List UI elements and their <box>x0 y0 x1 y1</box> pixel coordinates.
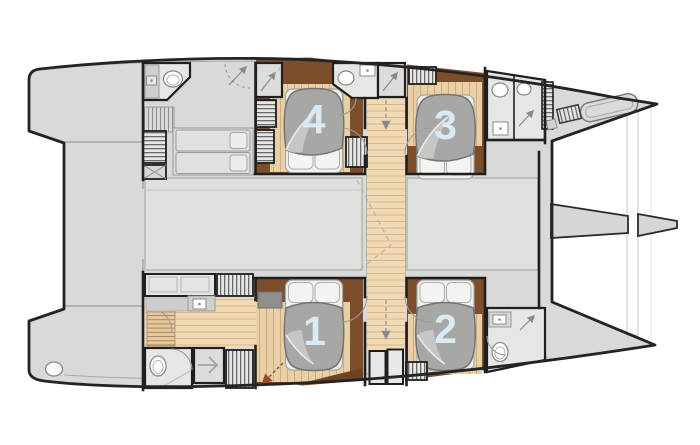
toilet-icon <box>492 83 508 97</box>
toilet-icon <box>338 71 354 85</box>
wardrobe-slats-icon <box>143 131 166 163</box>
wardrobe-slats-icon <box>406 362 427 380</box>
catamaran-deck-plan: 4 3 1 2 <box>0 0 700 445</box>
nightstand <box>258 292 282 308</box>
bowsprit <box>551 204 628 238</box>
wardrobe-slats-icon <box>256 100 276 127</box>
bowsprit-tip <box>638 214 677 236</box>
wardrobe-slats-icon <box>256 130 274 163</box>
saloon-panel-left <box>145 178 362 270</box>
cabin-3-shower <box>378 63 405 97</box>
shower-cubicle-bottom <box>194 348 224 383</box>
wardrobe-slats-icon <box>217 274 253 296</box>
starboard-hull-aft-area <box>145 274 257 388</box>
sink-icon <box>517 83 531 95</box>
aft-bathroom-bottom <box>145 348 192 388</box>
wardrobe-slats-icon <box>226 350 253 388</box>
cabin-number: 3 <box>434 102 457 148</box>
shower-cubicle <box>256 63 282 97</box>
cabin-number: 4 <box>303 96 326 142</box>
saloon-panel-right <box>407 178 538 270</box>
transom-hatch-icon <box>46 362 63 376</box>
stairs-icon <box>147 312 175 346</box>
deck-plan-svg: 4 3 1 2 <box>0 0 700 445</box>
stairs-icon <box>144 107 174 132</box>
cabin-number: 1 <box>303 308 326 354</box>
crew-berths <box>173 128 253 175</box>
cabin-number: 2 <box>434 306 457 352</box>
bow-rigging <box>551 108 677 340</box>
crossed-locker-icon <box>143 165 166 179</box>
